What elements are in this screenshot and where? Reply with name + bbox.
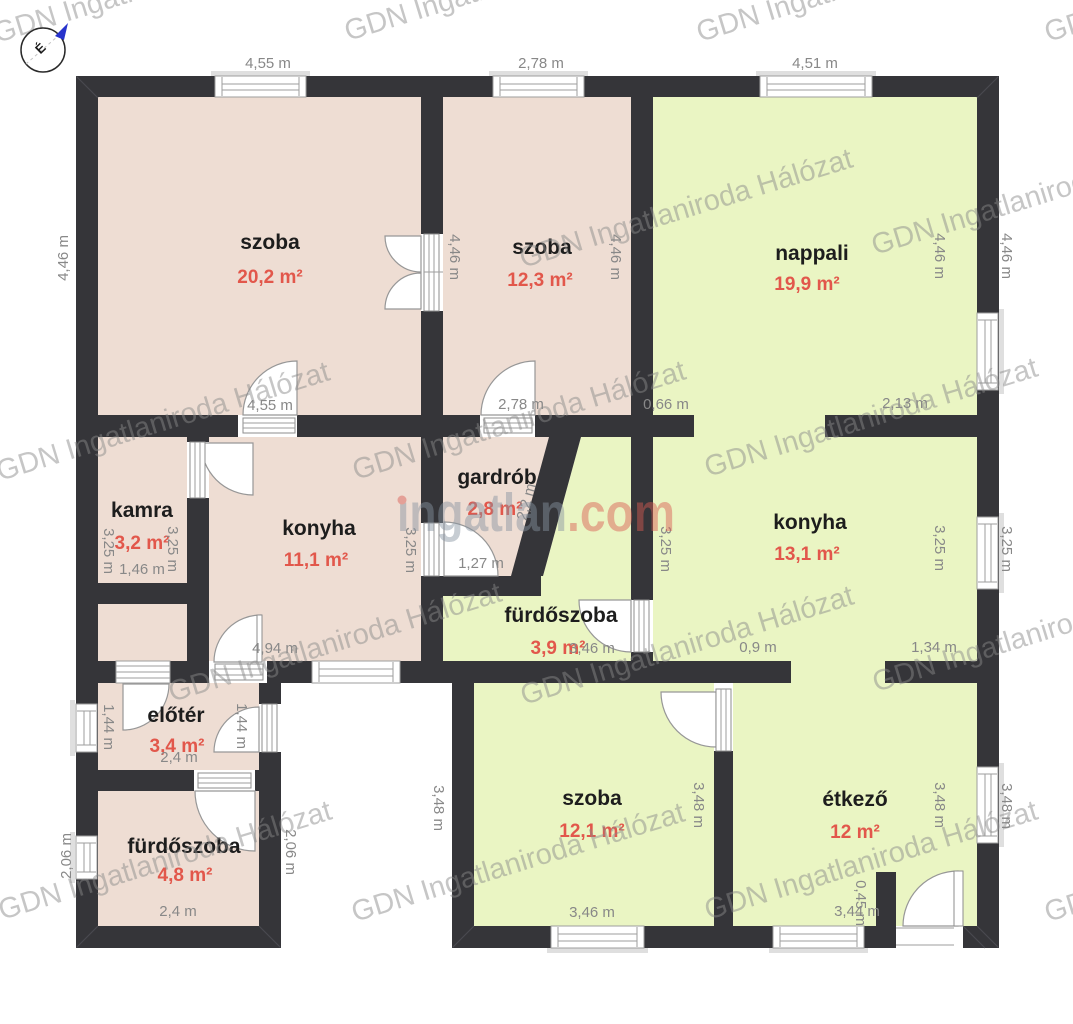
svg-text:1,44 m: 1,44 m xyxy=(233,703,250,749)
svg-text:szoba: szoba xyxy=(562,787,622,810)
svg-text:4,46 m: 4,46 m xyxy=(998,233,1015,279)
svg-text:3,2 m²: 3,2 m² xyxy=(115,533,170,554)
svg-text:0,45 m: 0,45 m xyxy=(852,880,869,926)
svg-text:4,46 m: 4,46 m xyxy=(55,235,72,281)
svg-text:kamra: kamra xyxy=(111,499,173,522)
svg-text:4,51 m: 4,51 m xyxy=(792,55,838,72)
svg-text:szoba: szoba xyxy=(240,231,300,254)
svg-text:ıngatlan: ıngatlan xyxy=(397,483,567,543)
svg-text:12,3 m²: 12,3 m² xyxy=(507,270,572,291)
svg-text:nappali: nappali xyxy=(775,242,849,265)
svg-text:20,2 m²: 20,2 m² xyxy=(237,267,302,288)
svg-text:2,78 m: 2,78 m xyxy=(518,55,564,72)
svg-text:13,1 m²: 13,1 m² xyxy=(774,544,839,565)
svg-text:3,48 m: 3,48 m xyxy=(430,785,447,831)
svg-text:fürdőszoba: fürdőszoba xyxy=(504,604,617,627)
svg-text:étkező: étkező xyxy=(822,788,887,811)
svg-text:11,1 m²: 11,1 m² xyxy=(284,550,348,571)
svg-text:3,25 m: 3,25 m xyxy=(931,525,948,571)
svg-text:konyha: konyha xyxy=(282,517,356,540)
svg-text:4,46 m: 4,46 m xyxy=(446,234,463,280)
svg-text:.com: .com xyxy=(567,483,675,543)
svg-text:konyha: konyha xyxy=(773,511,847,534)
svg-text:1,44 m: 1,44 m xyxy=(100,704,117,750)
svg-text:19,9 m²: 19,9 m² xyxy=(774,274,839,295)
svg-text:0,66 m: 0,66 m xyxy=(643,396,689,413)
svg-text:3,46 m: 3,46 m xyxy=(569,904,615,921)
svg-text:1,46 m: 1,46 m xyxy=(119,561,165,578)
svg-text:12 m²: 12 m² xyxy=(830,822,880,843)
svg-text:3,25 m: 3,25 m xyxy=(100,528,117,574)
svg-text:4,55 m: 4,55 m xyxy=(245,55,291,72)
svg-text:3,25 m: 3,25 m xyxy=(998,526,1015,572)
svg-text:2,4 m: 2,4 m xyxy=(159,903,197,920)
svg-text:1,27 m: 1,27 m xyxy=(458,555,504,572)
svg-text:3,48 m: 3,48 m xyxy=(690,782,707,828)
svg-text:2,4 m: 2,4 m xyxy=(160,749,198,766)
svg-text:3,25 m: 3,25 m xyxy=(164,526,181,572)
